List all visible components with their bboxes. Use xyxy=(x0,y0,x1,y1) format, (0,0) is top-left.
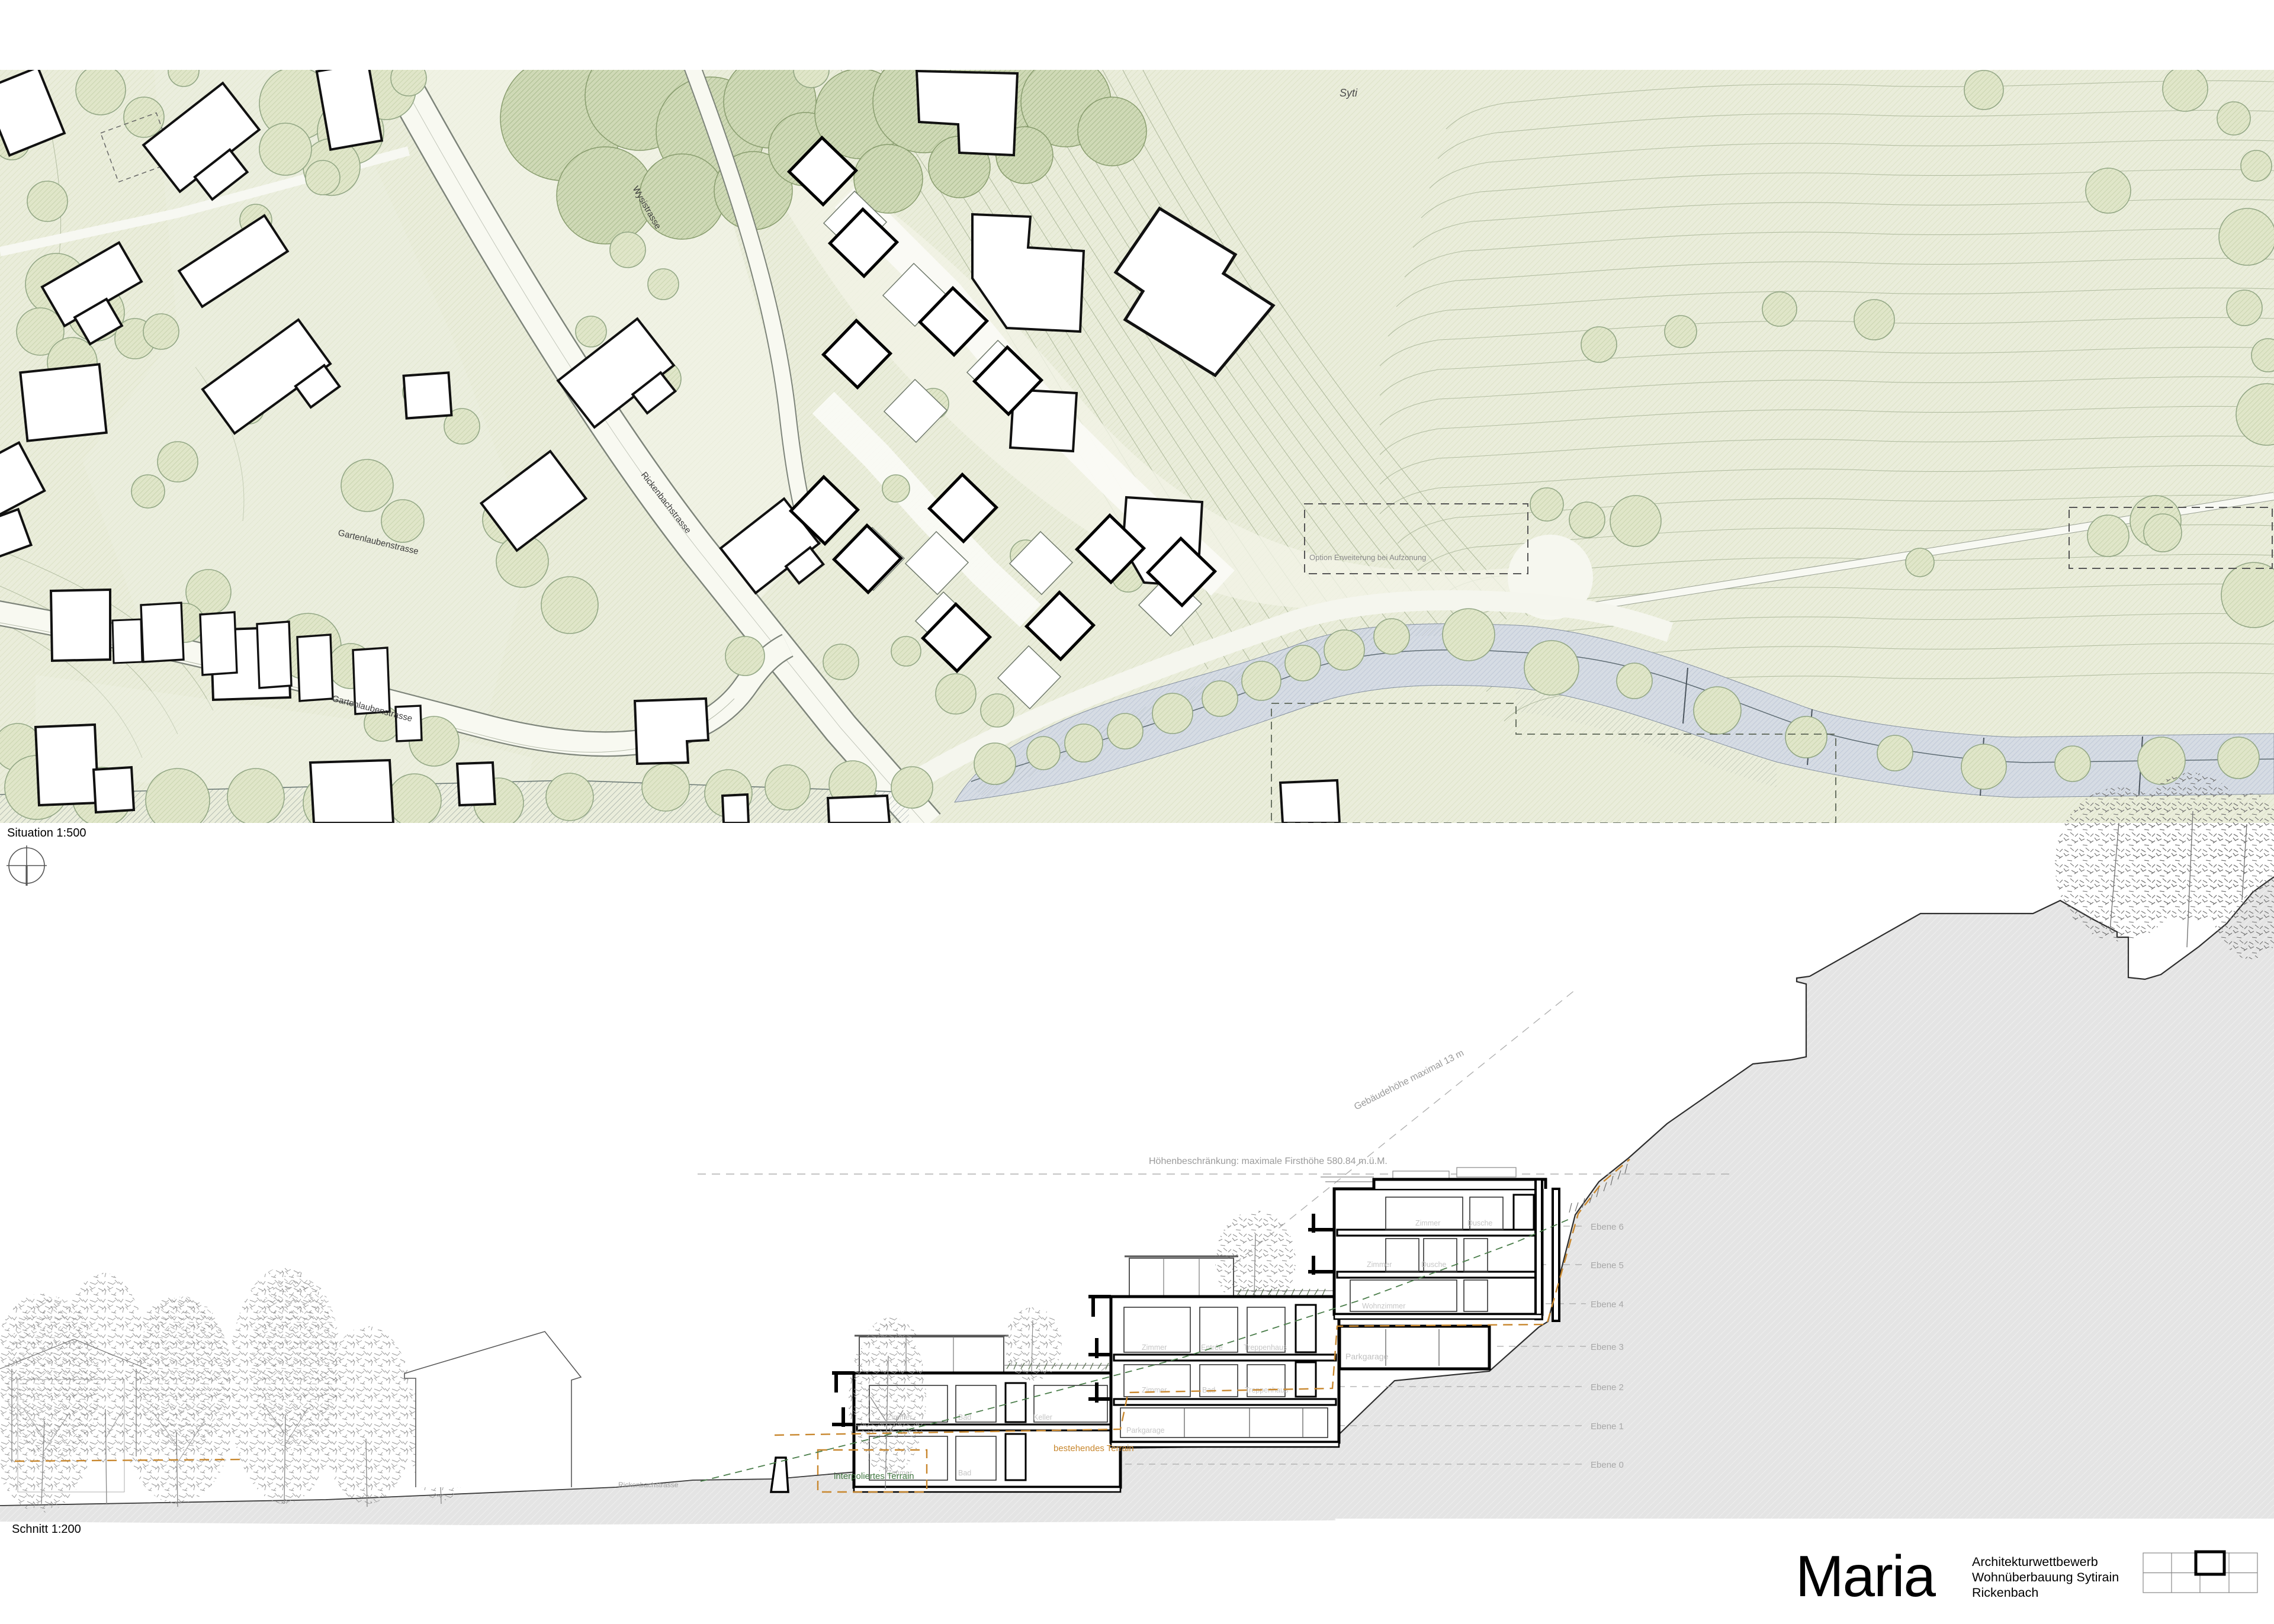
svg-text:Architekturwettbewerb: Architekturwettbewerb xyxy=(1972,1555,2098,1569)
svg-text:Bad: Bad xyxy=(958,1469,971,1477)
svg-text:Ebene 3: Ebene 3 xyxy=(1591,1342,1624,1352)
svg-text:Option Erweiterung bei Aufzonu: Option Erweiterung bei Aufzonung xyxy=(1309,553,1426,562)
svg-text:Zimmer: Zimmer xyxy=(1142,1386,1167,1394)
svg-text:Parkgarage: Parkgarage xyxy=(1345,1352,1389,1361)
svg-text:Syti: Syti xyxy=(1340,87,1358,99)
svg-text:Keller: Keller xyxy=(1033,1413,1052,1422)
svg-text:Höhenbeschränkung: maximale Fi: Höhenbeschränkung: maximale Firsthöhe 58… xyxy=(1149,1156,1387,1166)
svg-text:bestehendes Terrain: bestehendes Terrain xyxy=(1054,1443,1134,1453)
svg-text:Ebene 5: Ebene 5 xyxy=(1591,1260,1624,1271)
svg-text:Ebene 6: Ebene 6 xyxy=(1591,1222,1624,1232)
svg-text:Zimmer: Zimmer xyxy=(1142,1343,1167,1352)
svg-text:Dusche: Dusche xyxy=(1421,1260,1446,1269)
svg-text:Zimmer: Zimmer xyxy=(1367,1260,1392,1269)
svg-text:Rickenbachstrasse: Rickenbachstrasse xyxy=(618,1481,679,1489)
svg-text:Treppenhaus: Treppenhaus xyxy=(1244,1343,1287,1352)
svg-text:Gebäudehöhe maximal 13 m: Gebäudehöhe maximal 13 m xyxy=(1353,1048,1466,1112)
svg-text:Dusche: Dusche xyxy=(1467,1219,1492,1227)
svg-text:Ebene 1: Ebene 1 xyxy=(1591,1422,1624,1432)
svg-text:Treppenhaus: Treppenhaus xyxy=(1245,1386,1288,1394)
svg-text:Rickenbach: Rickenbach xyxy=(1972,1586,2038,1600)
svg-text:Wohnüberbauung Sytirain: Wohnüberbauung Sytirain xyxy=(1972,1570,2119,1584)
svg-text:Parkgarage: Parkgarage xyxy=(1126,1426,1165,1435)
svg-text:Ebene 0: Ebene 0 xyxy=(1591,1460,1624,1470)
svg-text:Situation 1:500: Situation 1:500 xyxy=(7,827,86,840)
svg-text:interpoliertes Terrain: interpoliertes Terrain xyxy=(834,1471,914,1481)
svg-text:Entrée: Entrée xyxy=(1201,1343,1223,1352)
svg-text:Zimmer: Zimmer xyxy=(1415,1219,1440,1227)
svg-text:Ebene 4: Ebene 4 xyxy=(1591,1300,1624,1310)
svg-text:Wohnzimmer: Wohnzimmer xyxy=(1362,1302,1405,1310)
svg-text:Ebene 2: Ebene 2 xyxy=(1591,1382,1624,1393)
svg-text:Maria: Maria xyxy=(1796,1543,1936,1609)
svg-text:Schnitt 1:200: Schnitt 1:200 xyxy=(12,1523,81,1536)
